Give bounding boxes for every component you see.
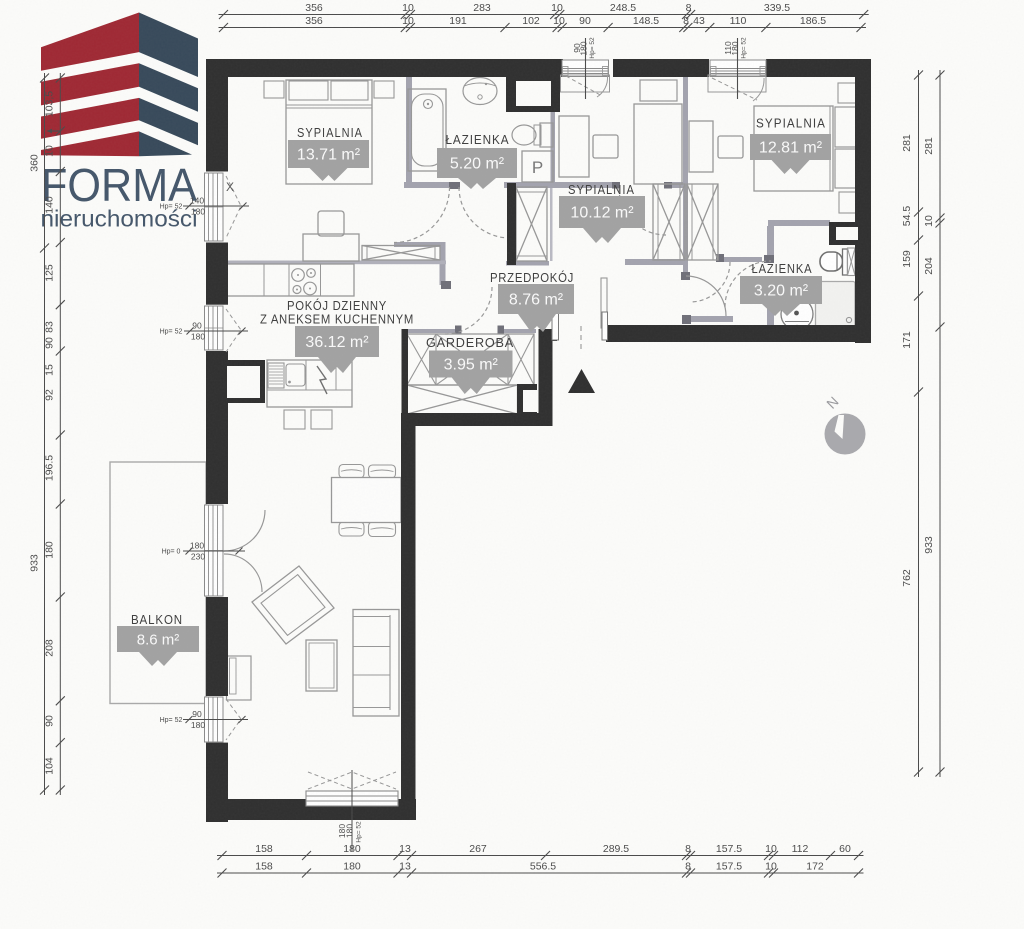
svg-text:13: 13 bbox=[399, 843, 411, 855]
svg-text:15: 15 bbox=[44, 364, 56, 376]
svg-text:10.12 m²: 10.12 m² bbox=[570, 205, 634, 222]
svg-text:10: 10 bbox=[923, 215, 935, 227]
svg-text:762: 762 bbox=[901, 569, 913, 587]
svg-text:5.20 m²: 5.20 m² bbox=[450, 156, 505, 173]
svg-text:8.6 m²: 8.6 m² bbox=[137, 632, 180, 649]
svg-text:556.5: 556.5 bbox=[530, 861, 556, 873]
svg-text:92: 92 bbox=[44, 389, 56, 401]
svg-text:180: 180 bbox=[44, 541, 56, 559]
svg-text:8.76 m²: 8.76 m² bbox=[509, 292, 564, 309]
svg-text:10: 10 bbox=[402, 15, 414, 27]
svg-text:159: 159 bbox=[901, 250, 913, 268]
svg-text:180: 180 bbox=[345, 824, 355, 838]
svg-text:ŁAZIENKA: ŁAZIENKA bbox=[752, 261, 813, 276]
svg-text:8: 8 bbox=[686, 2, 692, 14]
svg-text:191: 191 bbox=[449, 15, 467, 27]
svg-text:90: 90 bbox=[44, 715, 56, 727]
svg-text:102: 102 bbox=[522, 15, 540, 27]
svg-text:10: 10 bbox=[553, 15, 565, 27]
svg-text:10: 10 bbox=[765, 843, 777, 855]
svg-text:90: 90 bbox=[579, 15, 591, 27]
svg-text:10: 10 bbox=[551, 2, 563, 14]
svg-text:180: 180 bbox=[343, 861, 361, 873]
svg-text:289.5: 289.5 bbox=[603, 843, 629, 855]
svg-text:360: 360 bbox=[29, 154, 41, 172]
svg-text:110: 110 bbox=[730, 15, 747, 27]
svg-text:Hp= 52: Hp= 52 bbox=[160, 204, 183, 211]
svg-text:180: 180 bbox=[191, 332, 205, 342]
svg-text:ŁAZIENKA: ŁAZIENKA bbox=[446, 132, 510, 147]
svg-text:10: 10 bbox=[44, 145, 56, 157]
svg-text:8: 8 bbox=[685, 843, 691, 855]
svg-text:Z ANEKSEM KUCHENNYM: Z ANEKSEM KUCHENNYM bbox=[260, 312, 414, 327]
svg-text:90: 90 bbox=[44, 337, 56, 349]
svg-text:140: 140 bbox=[190, 196, 204, 206]
svg-text:148.5: 148.5 bbox=[633, 15, 659, 27]
svg-text:171: 171 bbox=[901, 331, 913, 349]
svg-text:248.5: 248.5 bbox=[610, 2, 636, 14]
svg-text:Hp= 52: Hp= 52 bbox=[160, 329, 183, 336]
svg-text:103,5: 103,5 bbox=[44, 91, 56, 117]
svg-text:13: 13 bbox=[399, 861, 411, 873]
svg-text:933: 933 bbox=[29, 554, 41, 572]
svg-text:BALKON: BALKON bbox=[131, 612, 183, 627]
svg-text:281: 281 bbox=[901, 134, 913, 152]
svg-text:SYPIALNIA: SYPIALNIA bbox=[756, 116, 826, 131]
svg-text:60: 60 bbox=[839, 843, 851, 855]
svg-text:12.81 m²: 12.81 m² bbox=[759, 140, 823, 157]
svg-text:90: 90 bbox=[192, 709, 202, 719]
svg-text:104: 104 bbox=[44, 757, 56, 775]
svg-text:Hp= 52: Hp= 52 bbox=[589, 37, 596, 59]
svg-text:10: 10 bbox=[402, 2, 414, 14]
svg-text:125: 125 bbox=[44, 264, 56, 282]
svg-text:230: 230 bbox=[191, 552, 205, 562]
svg-text:204: 204 bbox=[923, 257, 935, 275]
svg-text:43: 43 bbox=[693, 15, 705, 27]
svg-text:157.5: 157.5 bbox=[716, 861, 742, 873]
svg-text:SYPIALNIA: SYPIALNIA bbox=[297, 125, 363, 140]
svg-text:356: 356 bbox=[305, 15, 323, 27]
svg-text:339.5: 339.5 bbox=[764, 2, 790, 14]
svg-text:36.12 m²: 36.12 m² bbox=[305, 334, 369, 351]
svg-text:180: 180 bbox=[191, 207, 205, 217]
svg-text:157.5: 157.5 bbox=[716, 843, 742, 855]
svg-text:PRZEDPOKÓJ: PRZEDPOKÓJ bbox=[490, 270, 574, 285]
svg-text:90: 90 bbox=[192, 321, 202, 331]
svg-text:140: 140 bbox=[44, 196, 56, 214]
svg-text:SYPIALNIA: SYPIALNIA bbox=[568, 182, 635, 197]
svg-text:180: 180 bbox=[190, 541, 204, 551]
svg-text:83: 83 bbox=[44, 321, 56, 333]
svg-text:54.5: 54.5 bbox=[901, 206, 913, 227]
svg-text:GARDEROBA: GARDEROBA bbox=[426, 335, 514, 350]
svg-text:180: 180 bbox=[579, 41, 589, 55]
svg-text:196.5: 196.5 bbox=[44, 455, 56, 481]
svg-text:P: P bbox=[532, 158, 543, 177]
svg-text:3.95 m²: 3.95 m² bbox=[444, 357, 499, 374]
svg-text:180: 180 bbox=[191, 720, 205, 730]
svg-text:281: 281 bbox=[923, 137, 935, 155]
svg-text:158: 158 bbox=[255, 861, 273, 873]
svg-text:283: 283 bbox=[473, 2, 491, 14]
svg-text:Hp= 0: Hp= 0 bbox=[162, 549, 181, 556]
svg-text:267: 267 bbox=[469, 843, 487, 855]
svg-text:112: 112 bbox=[792, 843, 809, 855]
svg-text:356: 356 bbox=[305, 2, 323, 14]
svg-text:3.20 m²: 3.20 m² bbox=[754, 283, 809, 300]
svg-text:Hp= 52: Hp= 52 bbox=[356, 821, 363, 843]
svg-text:10: 10 bbox=[765, 861, 777, 873]
svg-text:172: 172 bbox=[806, 861, 824, 873]
svg-text:933: 933 bbox=[923, 536, 935, 554]
svg-text:8: 8 bbox=[685, 861, 691, 873]
svg-text:8: 8 bbox=[683, 15, 689, 27]
svg-text:X: X bbox=[226, 180, 234, 194]
svg-text:Hp= 52: Hp= 52 bbox=[741, 37, 748, 59]
svg-text:186.5: 186.5 bbox=[800, 15, 826, 27]
svg-text:208: 208 bbox=[44, 639, 56, 657]
svg-text:158: 158 bbox=[255, 843, 273, 855]
svg-text:13.71 m²: 13.71 m² bbox=[297, 147, 361, 164]
svg-text:180: 180 bbox=[730, 41, 740, 55]
svg-text:Hp= 52: Hp= 52 bbox=[160, 717, 183, 724]
